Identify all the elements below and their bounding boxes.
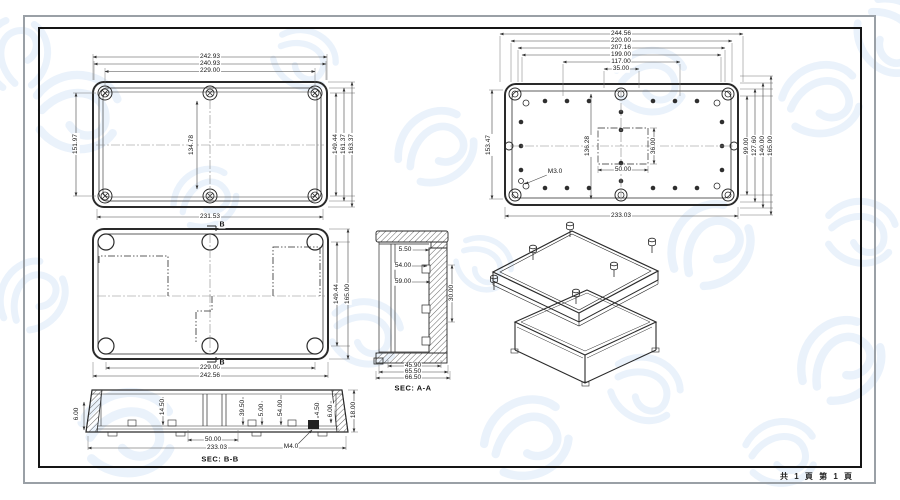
base-height-center-dim: 136.28 [585,135,592,157]
base-height-left-dim: 153.47 [486,134,493,156]
bb-right-height-dim: 18.00 [351,401,358,419]
aa-lip-dim: 5.50 [398,247,413,254]
base-pocket-width-dim: 50.00 [614,167,632,174]
section-aa-view [374,231,455,380]
base-width-bottom-dim: 233.03 [610,213,632,220]
isometric-view [491,222,660,386]
bb-left-height-dim: 6.00 [74,407,81,422]
lid-height-outer-dim: 163.37 [349,133,356,155]
aa-depth-dim: 59.00 [394,279,412,286]
drawing-linework [0,0,900,500]
boss-holes [519,99,725,191]
bb-d6-dim: 6.00 [328,404,335,419]
box-height-outer-dim: 165.00 [345,283,352,305]
section-aa-title: SEC: A-A [393,384,432,392]
bb-d5-dim: 4.50 [315,402,322,417]
base-pocket-height-dim: 36.00 [651,137,658,155]
aa-inner-depth-dim: 54.00 [394,263,412,270]
base-r3-dim: 140.00 [760,135,767,157]
base-thread-note: M3.0 [547,169,563,176]
bb-d1-dim: 14.50 [160,398,167,416]
lid-width-screws-dim: 229.00 [199,68,221,75]
box-top-view [93,226,350,378]
section-b-marker-bottom: B [218,360,225,367]
section-bb-title: SEC: B-B [200,455,239,463]
base-r4-dim: 165.00 [768,135,775,157]
bb-w1-dim: 50.00 [204,437,222,444]
bb-w2-dim: 233.03 [206,445,228,452]
lid-top-view [73,54,355,220]
lid-width-bottom-dim: 231.53 [199,214,221,221]
base-r2-dim: 127.60 [752,135,759,157]
bb-d4-dim: 54.00 [278,399,285,417]
bb-thread-note: M4.0 [283,444,299,451]
section-b-marker-top: B [218,222,225,229]
bb-d3-dim: 5.00 [259,403,266,418]
base-w6-dim: 35.00 [612,66,630,73]
lid-height-mid-dim: 161.37 [341,133,348,155]
aa-w3-dim: 66.50 [404,375,422,382]
drawing-sheet: 242.93 240.93 229.00 231.53 151.97 134.7… [0,0,900,500]
box-height-screws-dim: 149.44 [334,283,341,305]
aa-side-dim: 30.00 [449,284,456,302]
lid-height-center-dim: 134.78 [189,134,196,156]
page-count-label: 共 1 頁 第 1 頁 [780,471,854,482]
lid-height-screws-dim: 149.44 [333,133,340,155]
box-width-outer-dim: 242.56 [199,373,221,380]
base-r1-dim: 99.00 [744,137,751,155]
bb-d2-dim: 39.50 [240,399,247,417]
lid-height-left-dim: 151.97 [73,133,80,155]
